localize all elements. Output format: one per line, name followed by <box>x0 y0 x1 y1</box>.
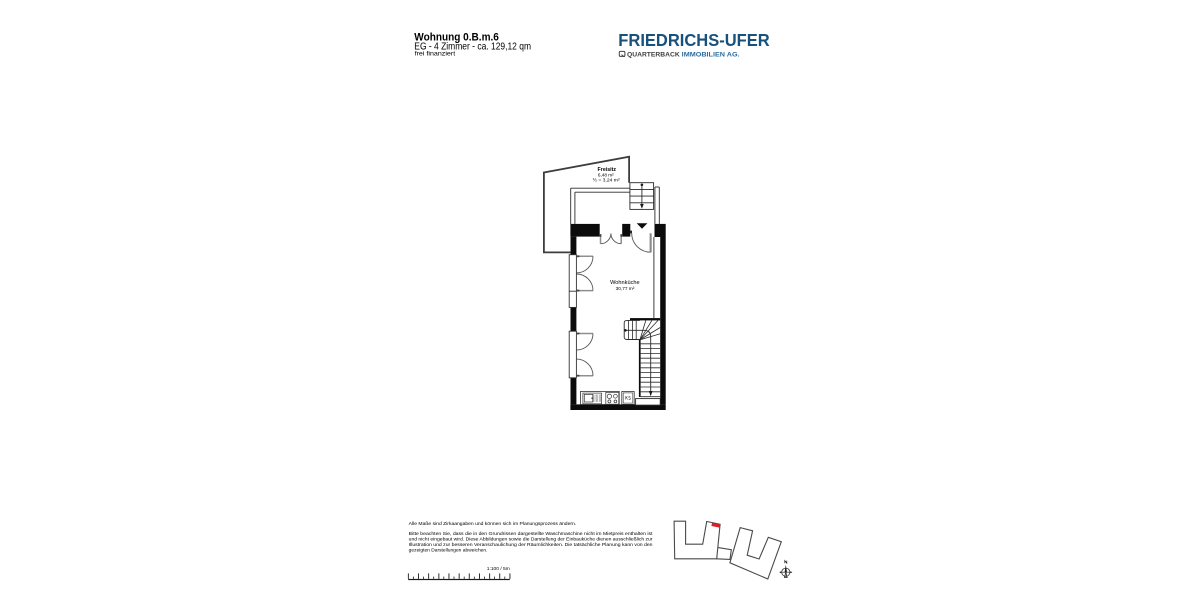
svg-text:Wohnküche: Wohnküche <box>610 280 640 286</box>
svg-text:Bitte beachten Sie, dass die i: Bitte beachten Sie, dass die in den Grun… <box>409 531 653 537</box>
svg-text:gezeigten Darstellungen abweic: gezeigten Darstellungen abweichen. <box>409 547 488 553</box>
svg-text:QUARTERBACK: QUARTERBACK <box>627 51 680 58</box>
svg-text:Alle Maße sind Zirkaangaben un: Alle Maße sind Zirkaangaben und können s… <box>409 521 577 527</box>
svg-text:30,77 m²: 30,77 m² <box>616 286 635 292</box>
svg-text:IMMOBILIEN AG.: IMMOBILIEN AG. <box>682 51 740 58</box>
svg-text:und nicht eingebaut wird. Dies: und nicht eingebaut wird. Diese Abbildun… <box>409 536 653 542</box>
svg-text:Illustration und zur besseren: Illustration und zur besseren Veranschau… <box>409 542 653 548</box>
svg-text:1:100 / 5m: 1:100 / 5m <box>487 566 510 572</box>
svg-text:frei finanziert: frei finanziert <box>415 51 456 58</box>
svg-text:½ = 3,24 m²: ½ = 3,24 m² <box>593 177 620 183</box>
svg-text:FRIEDRICHS-UFER: FRIEDRICHS-UFER <box>618 30 770 50</box>
